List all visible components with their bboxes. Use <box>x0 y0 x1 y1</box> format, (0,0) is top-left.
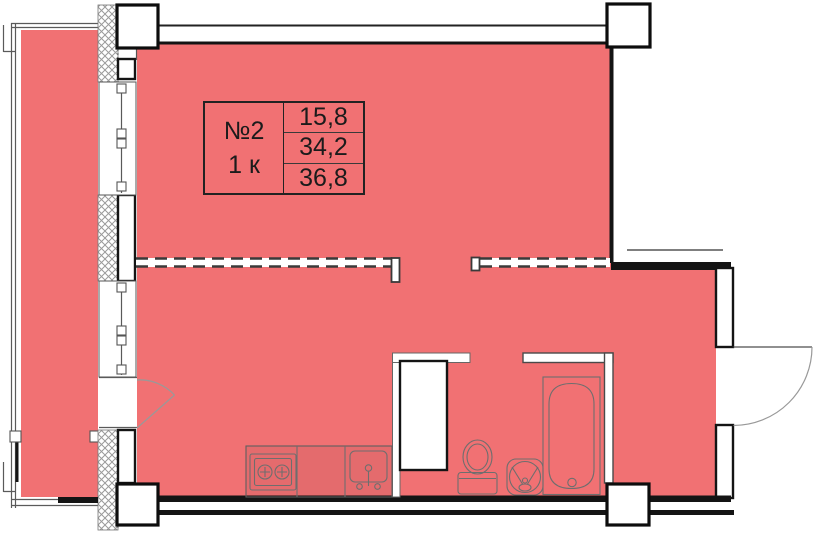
unit-rooms: 1 к <box>228 148 260 182</box>
balcony-bottom-wall <box>58 497 98 503</box>
area-value-apartment: 34,2 <box>284 133 363 163</box>
column-bottom-left <box>117 484 158 525</box>
unit-number: №2 <box>224 114 265 148</box>
column-bottom-right <box>607 484 649 525</box>
right-wall-upper <box>610 44 614 263</box>
kitchen <box>246 446 392 497</box>
neighbor-balcony-notch-bottom <box>4 462 17 492</box>
unit-cell: №2 1 к <box>205 103 284 193</box>
column-top-right <box>607 4 650 47</box>
bathroom-wall-top <box>523 353 613 363</box>
balcony <box>4 23 104 508</box>
neighbor-balcony-notch-top <box>4 25 17 52</box>
entrance-door <box>734 347 813 426</box>
glazing-mullion <box>10 431 21 442</box>
ventilation-shaft <box>400 361 447 470</box>
bathroom-wall-right <box>605 353 614 483</box>
floor-plan <box>0 0 828 536</box>
column-top-left <box>117 5 158 48</box>
area-value-living: 15,8 <box>284 103 363 133</box>
entrance-door-arc <box>734 347 813 426</box>
apartment-info-card: №2 1 к 15,8 34,2 36,8 <box>203 101 365 195</box>
wall-below-door <box>716 425 733 498</box>
step-wall <box>611 262 731 270</box>
area-values: 15,8 34,2 36,8 <box>284 103 363 193</box>
area-value-total: 36,8 <box>284 164 363 193</box>
wall-above-door <box>716 268 733 347</box>
